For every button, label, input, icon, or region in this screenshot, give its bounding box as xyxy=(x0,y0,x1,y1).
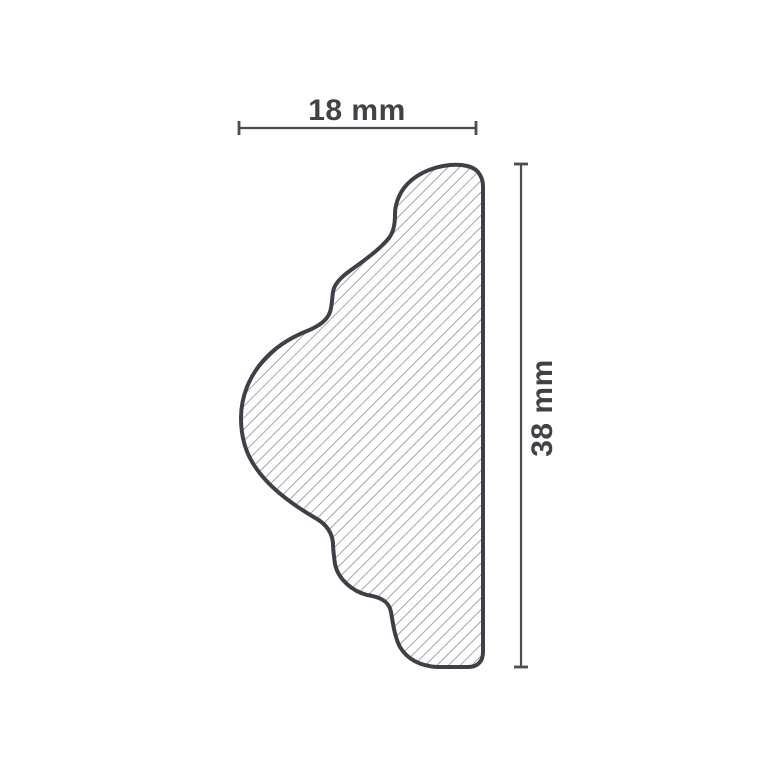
width-dimension-label: 18 mm xyxy=(308,94,406,127)
molding-profile-shape xyxy=(241,165,483,667)
height-dimension-label: 38 mm xyxy=(526,359,559,457)
diagram-svg: 18 mm 38 mm xyxy=(0,0,767,767)
molding-profile-diagram: 18 mm 38 mm xyxy=(0,0,767,767)
